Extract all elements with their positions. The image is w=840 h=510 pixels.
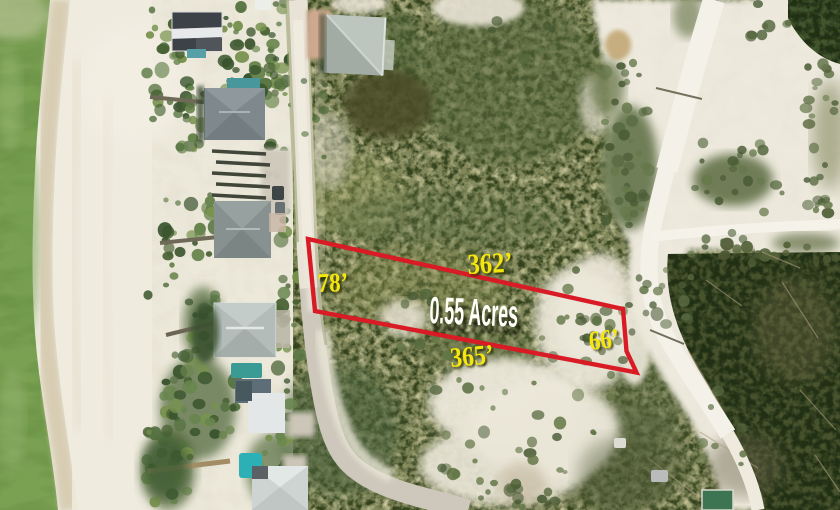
svg-text:66’: 66’ — [587, 324, 621, 357]
svg-text:0.55 Acres: 0.55 Acres — [429, 290, 519, 336]
svg-text:362’: 362’ — [467, 246, 514, 281]
svg-text:365’: 365’ — [449, 339, 495, 374]
svg-text:78’: 78’ — [317, 268, 349, 298]
